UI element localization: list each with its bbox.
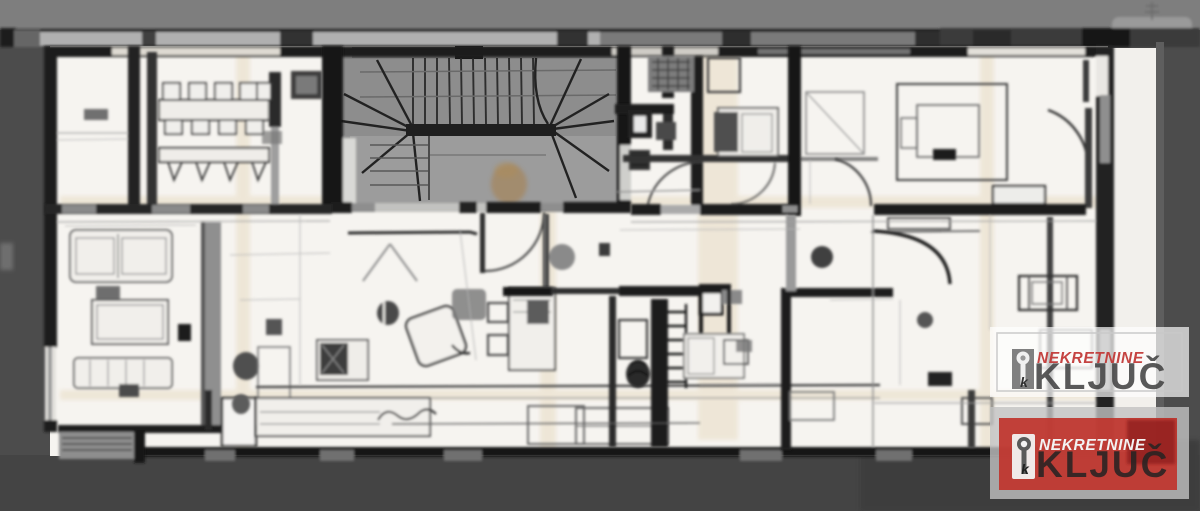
svg-text:k: k [1020,374,1029,390]
svg-text:KLJUČ: KLJUČ [1034,355,1167,397]
svg-text:KLJUČ: KLJUČ [1036,443,1169,485]
svg-text:k: k [1021,461,1030,477]
